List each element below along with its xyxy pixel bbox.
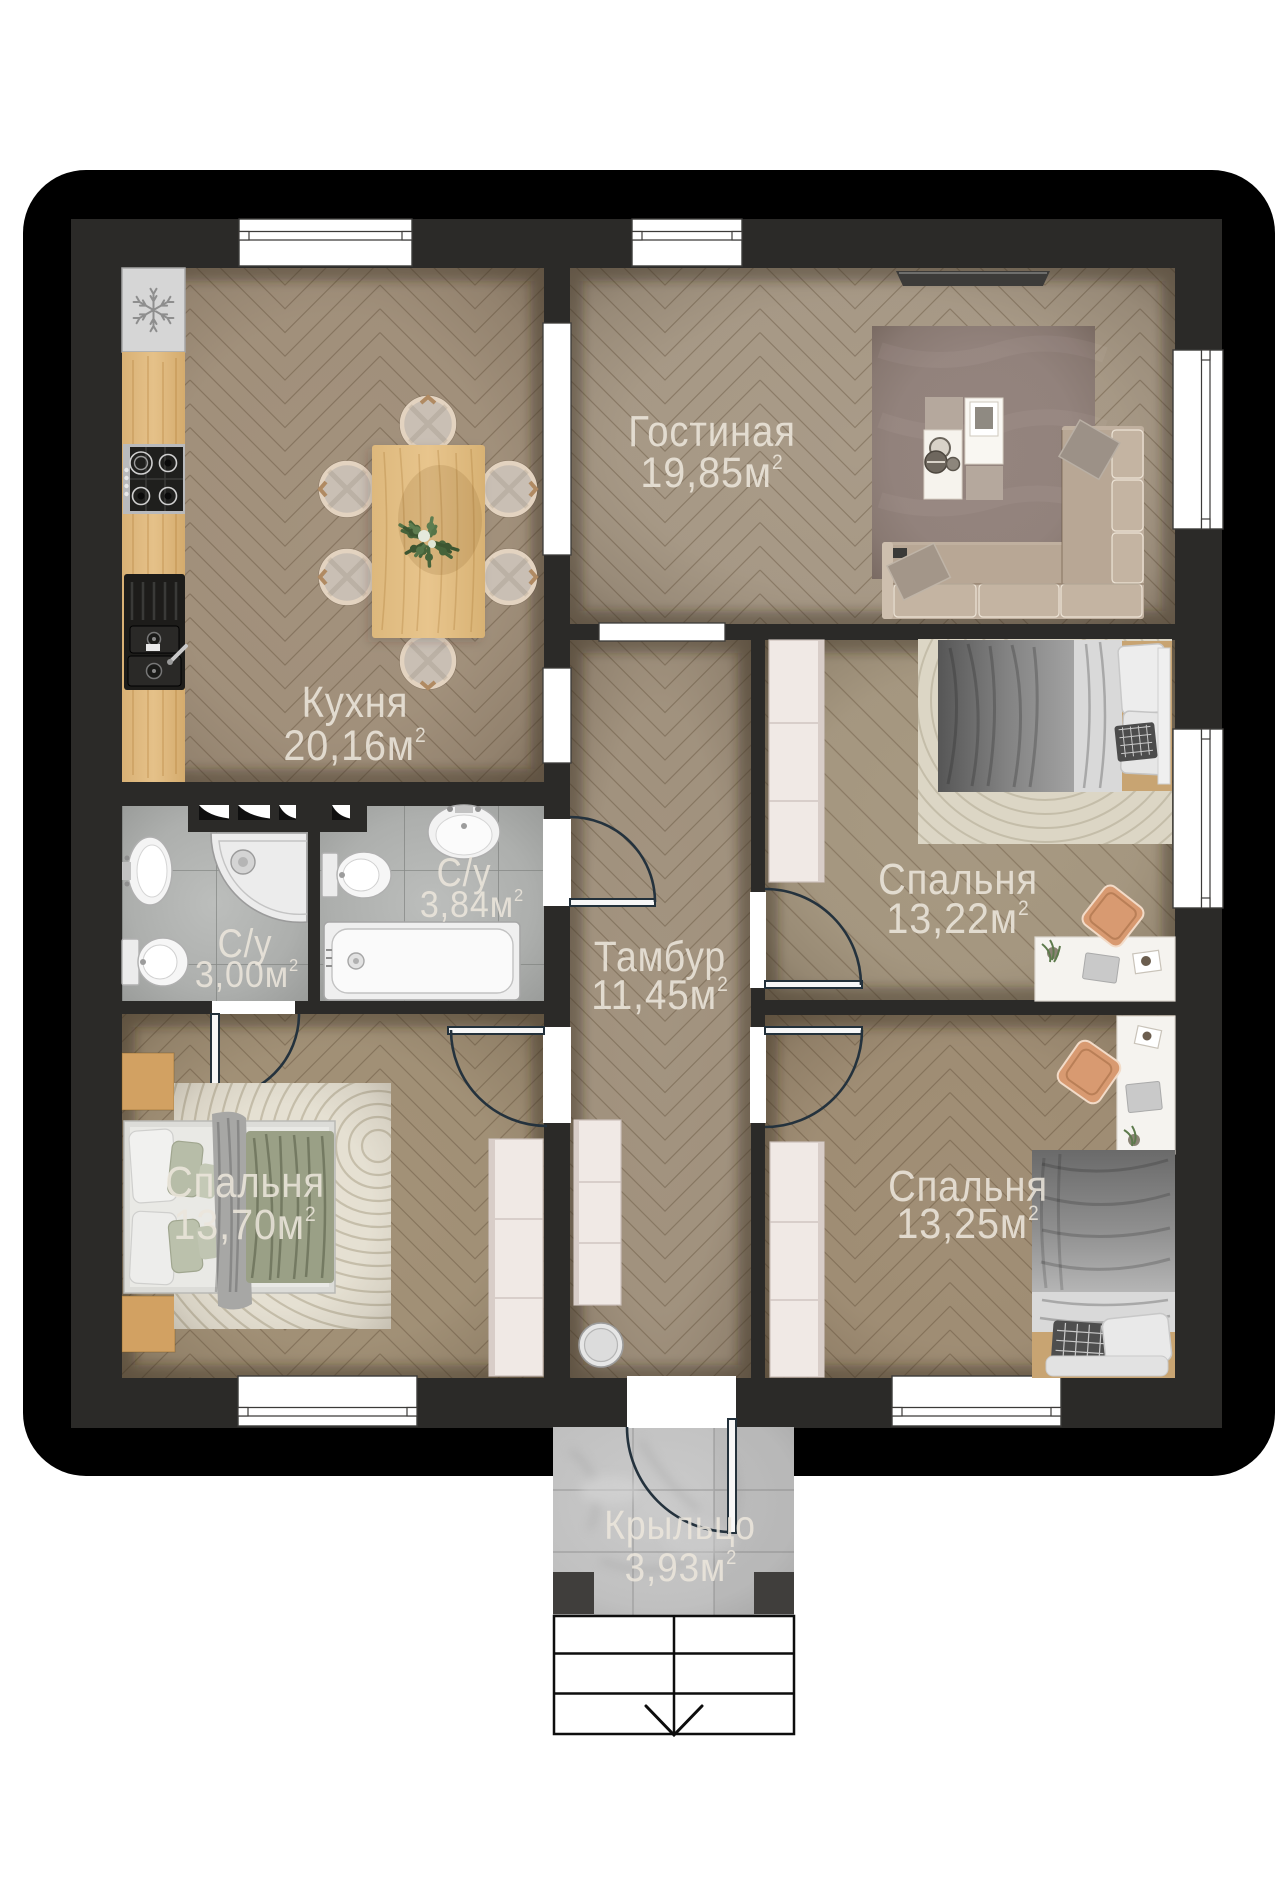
svg-text:Крыльцо: Крыльцо (604, 1503, 756, 1549)
svg-text:13,22м2: 13,22м2 (886, 894, 1029, 942)
svg-text:19,85м2: 19,85м2 (640, 448, 783, 496)
svg-text:Спальня: Спальня (165, 1158, 325, 1207)
svg-text:3,00м2: 3,00м2 (195, 954, 299, 996)
svg-text:13,70м2: 13,70м2 (173, 1200, 316, 1248)
svg-text:13,25м2: 13,25м2 (896, 1199, 1039, 1247)
svg-text:3,93м2: 3,93м2 (625, 1546, 738, 1591)
svg-text:Кухня: Кухня (302, 678, 409, 727)
svg-text:3,84м2: 3,84м2 (420, 884, 524, 926)
svg-text:20,16м2: 20,16м2 (283, 721, 426, 769)
svg-text:11,45м2: 11,45м2 (591, 970, 729, 1018)
